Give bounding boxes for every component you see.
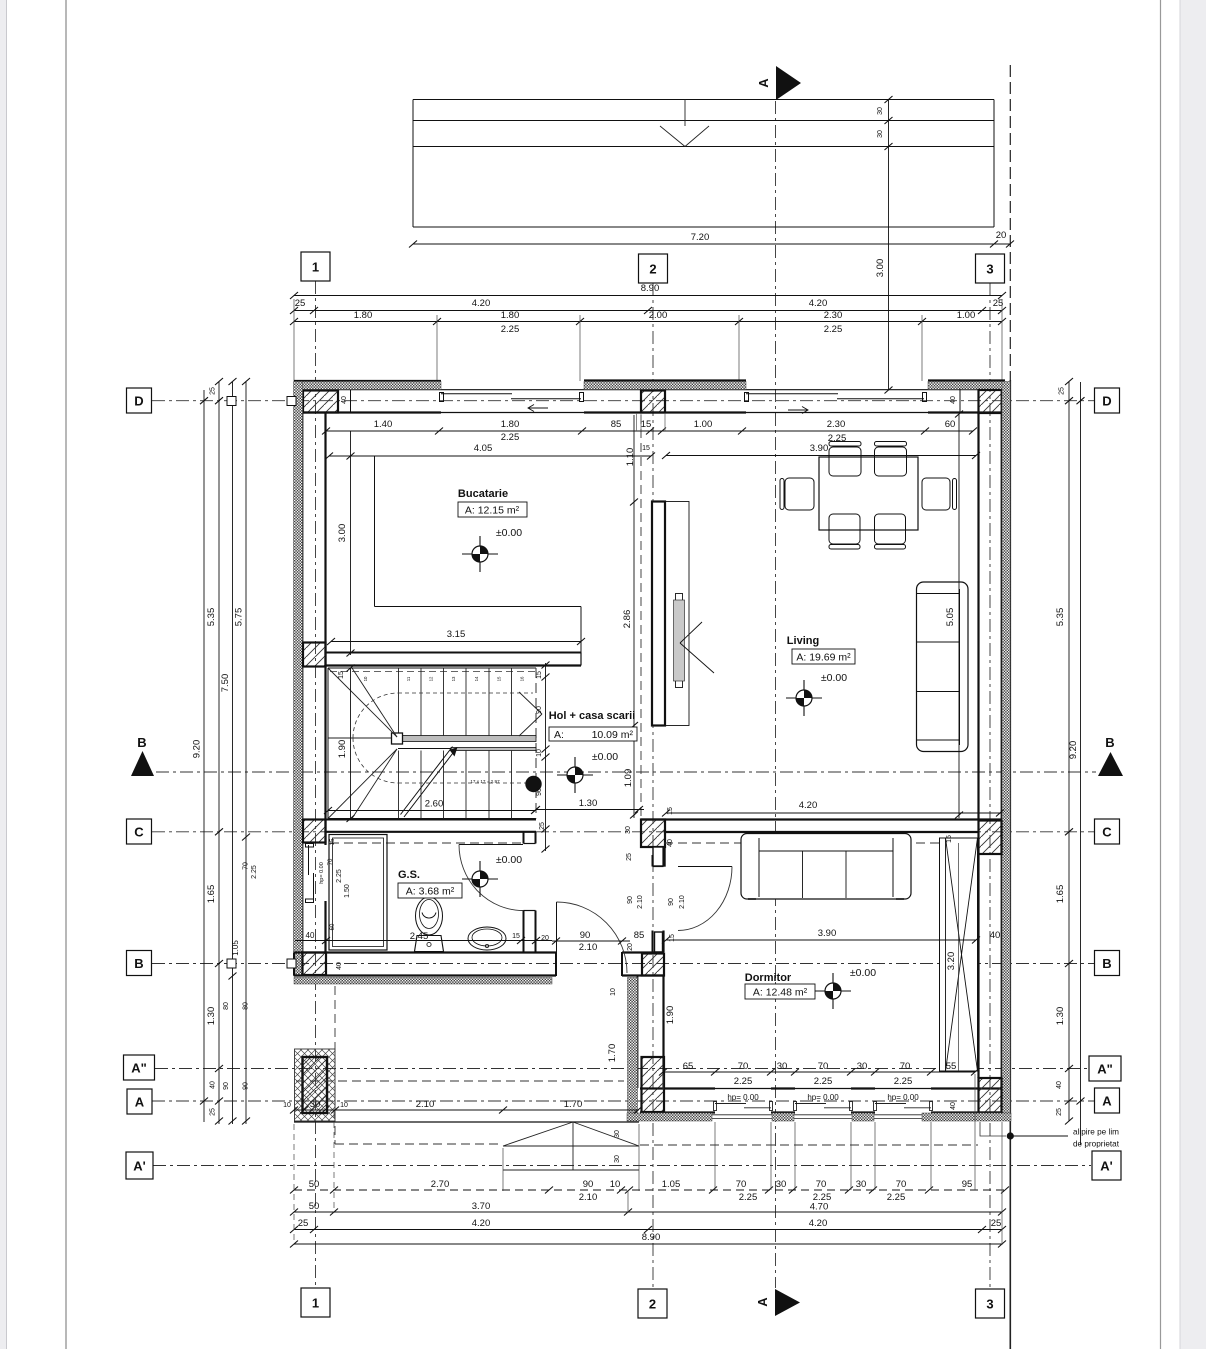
svg-text:1.30: 1.30 xyxy=(206,1007,217,1026)
svg-text:40: 40 xyxy=(667,839,674,847)
svg-text:1.10: 1.10 xyxy=(625,448,636,467)
svg-text:25: 25 xyxy=(210,1108,217,1116)
svg-text:30: 30 xyxy=(877,107,884,115)
svg-text:2.25: 2.25 xyxy=(501,324,520,335)
svg-text:70: 70 xyxy=(896,1179,907,1190)
svg-text:30: 30 xyxy=(310,1099,321,1110)
svg-text:40: 40 xyxy=(210,1081,217,1089)
svg-text:70: 70 xyxy=(816,1179,827,1190)
svg-text:65: 65 xyxy=(683,1061,694,1072)
svg-text:Bucatarie: Bucatarie xyxy=(458,488,508,500)
svg-text:8.90: 8.90 xyxy=(642,1232,661,1243)
svg-text:50: 50 xyxy=(309,1201,320,1212)
svg-text:30: 30 xyxy=(776,1179,787,1190)
svg-text:1.80: 1.80 xyxy=(501,419,520,430)
svg-text:80: 80 xyxy=(223,1002,230,1010)
svg-text:90: 90 xyxy=(536,706,543,714)
svg-text:15: 15 xyxy=(641,419,652,430)
svg-text:30: 30 xyxy=(877,130,884,138)
svg-text:1.70: 1.70 xyxy=(607,1044,618,1063)
svg-text:25: 25 xyxy=(626,853,633,861)
svg-text:1.90: 1.90 xyxy=(665,1006,676,1025)
svg-text:3.90: 3.90 xyxy=(810,443,829,454)
svg-text:5.35: 5.35 xyxy=(1055,608,1066,627)
svg-text:9.20: 9.20 xyxy=(192,740,203,759)
svg-text:B: B xyxy=(1105,735,1114,750)
svg-text:5.75: 5.75 xyxy=(234,608,245,627)
svg-text:13: 13 xyxy=(451,676,456,681)
svg-text:15: 15 xyxy=(512,933,520,940)
svg-text:A": A" xyxy=(131,1061,147,1076)
svg-text:3: 3 xyxy=(986,1297,993,1312)
svg-text:B: B xyxy=(1102,956,1111,971)
svg-text:±0.00: ±0.00 xyxy=(821,672,847,684)
svg-text:2.25: 2.25 xyxy=(894,1076,913,1087)
svg-text:1.80: 1.80 xyxy=(354,310,373,321)
svg-text:55: 55 xyxy=(946,1061,957,1072)
svg-text:A: 3.68 m²: A: 3.68 m² xyxy=(406,886,455,898)
svg-text:4.70: 4.70 xyxy=(810,1202,829,1213)
svg-text:1.05: 1.05 xyxy=(231,940,240,956)
svg-text:14: 14 xyxy=(474,676,479,681)
svg-text:30: 30 xyxy=(614,1130,621,1138)
svg-text:70: 70 xyxy=(736,1179,747,1190)
svg-text:2.10: 2.10 xyxy=(416,1099,435,1110)
svg-text:Hol + casa scarii: Hol + casa scarii xyxy=(549,710,636,722)
svg-text:A: 19.69 m²: A: 19.69 m² xyxy=(796,652,851,664)
svg-text:2.25: 2.25 xyxy=(336,869,343,883)
svg-text:2.25: 2.25 xyxy=(814,1076,833,1087)
svg-text:40: 40 xyxy=(336,962,343,970)
svg-text:70: 70 xyxy=(900,1061,911,1072)
svg-text:2.10: 2.10 xyxy=(637,895,644,909)
svg-text:1.00: 1.00 xyxy=(957,310,976,321)
svg-text:10: 10 xyxy=(610,1179,621,1190)
svg-text:2.25: 2.25 xyxy=(251,865,258,879)
svg-text:D: D xyxy=(134,394,143,409)
svg-text:15: 15 xyxy=(330,838,336,845)
svg-text:17 x 17 = 2.97: 17 x 17 = 2.97 xyxy=(470,779,500,784)
svg-text:70: 70 xyxy=(738,1061,749,1072)
svg-text:12: 12 xyxy=(429,676,434,681)
svg-text:C: C xyxy=(1102,825,1112,840)
svg-text:2.60: 2.60 xyxy=(425,799,444,810)
svg-text:25: 25 xyxy=(991,1218,1002,1229)
svg-text:15: 15 xyxy=(669,934,676,942)
svg-text:2.30: 2.30 xyxy=(827,419,846,430)
svg-text:90: 90 xyxy=(243,1082,250,1090)
svg-text:70: 70 xyxy=(818,1061,829,1072)
svg-text:40: 40 xyxy=(950,396,957,404)
svg-text:80: 80 xyxy=(243,1002,250,1010)
svg-text:A: 12.48 m²: A: 12.48 m² xyxy=(753,987,808,999)
svg-text:10: 10 xyxy=(536,749,543,757)
svg-text:10.09 m²: 10.09 m² xyxy=(592,729,634,741)
svg-text:90: 90 xyxy=(668,898,675,906)
svg-text:1: 1 xyxy=(312,1296,319,1311)
svg-text:40: 40 xyxy=(306,931,315,940)
svg-text:50: 50 xyxy=(309,1179,320,1190)
svg-text:2.10: 2.10 xyxy=(579,942,598,953)
svg-text:2.10: 2.10 xyxy=(579,1192,598,1203)
svg-text:30: 30 xyxy=(856,1179,867,1190)
svg-text:Dormitor: Dormitor xyxy=(745,972,792,984)
svg-text:25: 25 xyxy=(210,387,217,395)
svg-text:10: 10 xyxy=(363,676,368,681)
svg-text:7.50: 7.50 xyxy=(220,674,231,693)
svg-text:4.20: 4.20 xyxy=(809,1218,828,1229)
svg-text:1.00: 1.00 xyxy=(694,419,713,430)
svg-text:1.30: 1.30 xyxy=(579,798,598,809)
svg-text:3.20: 3.20 xyxy=(946,952,957,971)
svg-text:hp= 0.00: hp= 0.00 xyxy=(319,862,325,884)
svg-text:10: 10 xyxy=(340,1102,348,1109)
svg-text:C: C xyxy=(134,825,144,840)
svg-text:25: 25 xyxy=(295,298,306,309)
svg-text:30: 30 xyxy=(614,1155,621,1163)
svg-text:1.40: 1.40 xyxy=(374,419,393,430)
svg-text:4.05: 4.05 xyxy=(474,443,493,454)
svg-text:25: 25 xyxy=(539,822,546,830)
svg-text:1.90: 1.90 xyxy=(337,740,348,759)
svg-text:11: 11 xyxy=(406,676,411,681)
svg-text:A: A xyxy=(755,1297,770,1307)
svg-text:1.70: 1.70 xyxy=(564,1099,583,1110)
svg-text:Living: Living xyxy=(787,635,819,647)
svg-text:3.00: 3.00 xyxy=(875,259,886,278)
svg-text:8.90: 8.90 xyxy=(641,283,660,294)
svg-text:70: 70 xyxy=(243,862,250,870)
svg-text:2.25: 2.25 xyxy=(501,432,520,443)
svg-text:4.20: 4.20 xyxy=(472,298,491,309)
svg-text:95: 95 xyxy=(962,1179,973,1190)
svg-text:85: 85 xyxy=(634,930,645,941)
svg-text:40: 40 xyxy=(950,1102,957,1110)
svg-text:40: 40 xyxy=(1056,1081,1063,1089)
svg-text:15: 15 xyxy=(497,676,502,681)
svg-text:4.20: 4.20 xyxy=(472,1218,491,1229)
svg-text:15: 15 xyxy=(667,807,674,815)
svg-text:±0.00: ±0.00 xyxy=(592,751,618,763)
svg-text:4.20: 4.20 xyxy=(809,298,828,309)
svg-text:90: 90 xyxy=(580,930,591,941)
svg-text:A: 12.15 m²: A: 12.15 m² xyxy=(465,505,520,517)
svg-text:A:: A: xyxy=(554,729,564,741)
svg-text:2.45: 2.45 xyxy=(410,931,429,942)
svg-text:70: 70 xyxy=(328,858,334,865)
svg-text:1.80: 1.80 xyxy=(501,310,520,321)
svg-text:A: A xyxy=(135,1095,145,1110)
svg-text:60: 60 xyxy=(945,419,956,430)
svg-text:20: 20 xyxy=(627,943,634,951)
svg-text:de proprietat: de proprietat xyxy=(1073,1140,1120,1149)
svg-text:40: 40 xyxy=(990,930,1001,941)
svg-text:2: 2 xyxy=(649,262,656,277)
svg-text:2.25: 2.25 xyxy=(887,1192,906,1203)
svg-text:2.70: 2.70 xyxy=(431,1179,450,1190)
svg-text:3.00: 3.00 xyxy=(337,524,348,543)
svg-text:20: 20 xyxy=(996,230,1007,241)
svg-text:9.20: 9.20 xyxy=(1068,741,1079,760)
svg-text:A': A' xyxy=(1100,1159,1112,1174)
svg-text:2.25: 2.25 xyxy=(824,324,843,335)
svg-text:90: 90 xyxy=(627,896,634,904)
svg-text:hp= 0.00: hp= 0.00 xyxy=(887,1093,919,1102)
svg-text:A: A xyxy=(756,78,771,88)
svg-text:alipire pe lim: alipire pe lim xyxy=(1073,1128,1119,1137)
svg-text:2.25: 2.25 xyxy=(739,1192,758,1203)
svg-text:30: 30 xyxy=(625,826,632,834)
svg-text:30: 30 xyxy=(777,1061,788,1072)
svg-text:2.00: 2.00 xyxy=(649,310,668,321)
svg-text:4.20: 4.20 xyxy=(799,800,818,811)
svg-text:90: 90 xyxy=(223,1082,230,1090)
svg-text:A: A xyxy=(1102,1094,1112,1109)
svg-text:1.65: 1.65 xyxy=(206,885,217,904)
svg-text:20: 20 xyxy=(541,935,549,942)
svg-text:85: 85 xyxy=(611,419,622,430)
svg-text:5.05: 5.05 xyxy=(945,608,956,627)
svg-text:15: 15 xyxy=(338,671,345,679)
svg-text:A': A' xyxy=(133,1159,145,1174)
svg-text:1.50: 1.50 xyxy=(344,884,351,898)
svg-text:40: 40 xyxy=(341,396,348,404)
svg-text:G.S.: G.S. xyxy=(398,869,420,881)
svg-text:15: 15 xyxy=(946,835,953,843)
svg-text:B: B xyxy=(134,956,143,971)
svg-text:16: 16 xyxy=(520,676,525,681)
svg-text:10: 10 xyxy=(610,988,617,996)
svg-text:15: 15 xyxy=(536,671,543,679)
svg-text:3.15: 3.15 xyxy=(447,629,466,640)
svg-text:hp= 0.00: hp= 0.00 xyxy=(807,1093,839,1102)
svg-text:2: 2 xyxy=(649,1297,656,1312)
svg-text:1.09: 1.09 xyxy=(623,769,634,788)
svg-text:1.30: 1.30 xyxy=(1055,1007,1066,1026)
svg-text:1: 1 xyxy=(312,260,319,275)
svg-text:D: D xyxy=(1102,394,1111,409)
svg-text:3.90: 3.90 xyxy=(818,928,837,939)
svg-text:2.10: 2.10 xyxy=(679,895,686,909)
svg-text:10: 10 xyxy=(283,1102,291,1109)
svg-text:2.25: 2.25 xyxy=(828,433,847,444)
svg-text:1.05: 1.05 xyxy=(662,1179,681,1190)
svg-text:2.30: 2.30 xyxy=(824,310,843,321)
svg-text:60: 60 xyxy=(330,923,336,930)
svg-text:3.70: 3.70 xyxy=(472,1201,491,1212)
svg-text:±0.00: ±0.00 xyxy=(850,967,876,979)
svg-text:90: 90 xyxy=(583,1179,594,1190)
svg-text:25: 25 xyxy=(1056,1108,1063,1116)
svg-text:1.65: 1.65 xyxy=(1055,885,1066,904)
svg-text:7.20: 7.20 xyxy=(691,232,710,243)
svg-text:±0.00: ±0.00 xyxy=(496,854,522,866)
svg-text:±0.00: ±0.00 xyxy=(496,527,522,539)
svg-text:25: 25 xyxy=(1059,387,1066,395)
svg-text:3: 3 xyxy=(986,262,993,277)
svg-text:15: 15 xyxy=(642,445,650,452)
svg-text:30: 30 xyxy=(857,1061,868,1072)
svg-text:B: B xyxy=(137,735,146,750)
svg-text:A": A" xyxy=(1097,1062,1113,1077)
svg-text:2.86: 2.86 xyxy=(622,610,633,629)
svg-text:2.25: 2.25 xyxy=(734,1076,753,1087)
svg-text:5.35: 5.35 xyxy=(206,608,217,627)
svg-text:hp= 0.00: hp= 0.00 xyxy=(727,1093,759,1102)
svg-text:25: 25 xyxy=(298,1218,309,1229)
svg-text:90: 90 xyxy=(536,788,543,796)
